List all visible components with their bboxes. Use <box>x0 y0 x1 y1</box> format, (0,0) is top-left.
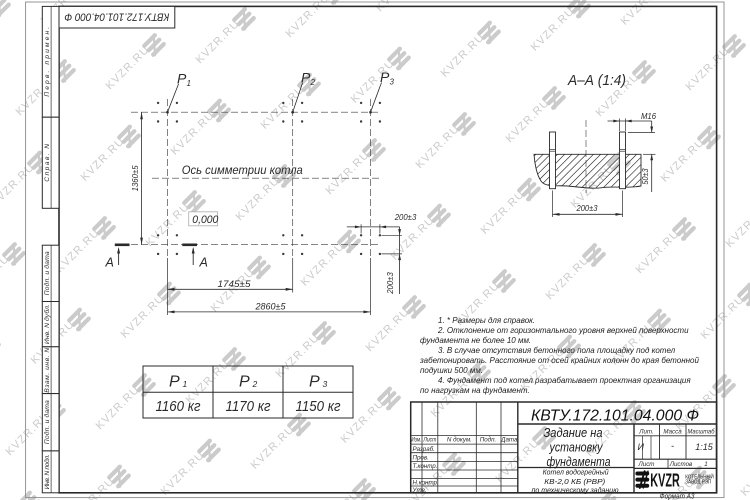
svg-text:3. В случае отсутствия бет: 3. В случае отсутствия бетонного пола пл… <box>438 346 676 355</box>
svg-text:Масштаб: Масштаб <box>688 428 715 435</box>
svg-text:КВ-2,0 КБ (РВР): КВ-2,0 КБ (РВР) <box>544 479 605 486</box>
svg-text:А: А <box>199 256 208 270</box>
svg-text:Подп. и дата: Подп. и дата <box>43 251 51 295</box>
svg-text:А: А <box>105 256 114 270</box>
svg-text:3: 3 <box>390 78 395 87</box>
svg-text:по нагрузкам на фундамент.: по нагрузкам на фундамент. <box>420 386 530 395</box>
svg-text:КВТУ.172.101.04.000 Ф: КВТУ.172.101.04.000 Ф <box>531 407 699 424</box>
svg-text:1160 кг: 1160 кг <box>156 399 201 415</box>
svg-text:2. Отклонение от горизонтал: 2. Отклонение от горизонтального уровня … <box>437 326 689 335</box>
svg-text:Пров.: Пров. <box>413 454 429 461</box>
svg-text:200±3: 200±3 <box>394 213 417 222</box>
svg-text:по техническому заданию: по техническому заданию <box>532 486 620 494</box>
svg-text:P: P <box>380 69 390 85</box>
svg-text:0,000: 0,000 <box>192 214 219 226</box>
svg-text:фундамента: фундамента <box>547 455 611 469</box>
svg-text:А–А (1:4): А–А (1:4) <box>567 73 626 89</box>
svg-text:Лист: Лист <box>638 461 655 468</box>
svg-text:Перв. примен.: Перв. примен. <box>44 27 51 97</box>
svg-text:1: 1 <box>187 79 191 88</box>
svg-text:Задание на: Задание на <box>544 426 603 440</box>
svg-text:ЗАВОД РЭП: ЗАВОД РЭП <box>685 480 711 486</box>
svg-text:Утв.: Утв. <box>412 487 427 494</box>
svg-text:1: 1 <box>704 461 707 468</box>
svg-text:Инв. N дубл.: Инв. N дубл. <box>43 304 51 344</box>
svg-text:P: P <box>309 374 320 391</box>
svg-text:KVZR: KVZR <box>650 469 680 490</box>
svg-text:P: P <box>301 70 311 86</box>
svg-text:1. * Размеры для справок.: 1. * Размеры для справок. <box>438 316 535 325</box>
svg-text:2: 2 <box>252 379 258 389</box>
svg-text:200±3: 200±3 <box>576 204 598 213</box>
svg-text:1: 1 <box>183 379 188 389</box>
svg-text:Ось симметрии котла: Ось симметрии котла <box>182 165 303 177</box>
svg-text:200±3: 200±3 <box>386 272 395 295</box>
svg-text:Котел водогрейный: Котел водогрейный <box>543 469 609 477</box>
svg-text:1:15: 1:15 <box>695 442 714 452</box>
svg-text:P: P <box>177 71 187 87</box>
svg-text:P: P <box>239 374 250 391</box>
svg-text:2: 2 <box>310 78 316 87</box>
svg-text:фундамента не более 10 мм.: фундамента не более 10 мм. <box>420 336 531 345</box>
svg-text:N докум.: N докум. <box>447 437 472 444</box>
svg-text:Листов: Листов <box>669 461 693 468</box>
svg-text:P: P <box>169 374 180 391</box>
svg-text:4. Фундамент под котел раз: 4. Фундамент под котел разрабатывает про… <box>438 376 691 385</box>
svg-text:М16: М16 <box>641 111 656 121</box>
svg-text:Формат А3: Формат А3 <box>660 493 695 500</box>
svg-text:подушки 500 мм.: подушки 500 мм. <box>420 366 483 375</box>
svg-text:1170 кг: 1170 кг <box>226 399 271 415</box>
svg-text:Разраб.: Разраб. <box>413 446 435 453</box>
svg-text:Лит.: Лит. <box>638 428 654 435</box>
svg-text:Дата: Дата <box>500 437 518 444</box>
svg-text:Изм.: Изм. <box>411 437 421 444</box>
svg-text:Н.контр.: Н.контр. <box>413 480 439 487</box>
svg-text:И: И <box>638 442 645 452</box>
svg-text:1150 кг: 1150 кг <box>296 399 341 415</box>
svg-text:Т.контр.: Т.контр. <box>413 463 438 470</box>
svg-text:Инв. N подл.: Инв. N подл. <box>43 454 51 489</box>
svg-text:Подп.: Подп. <box>480 437 496 444</box>
svg-text:2860±5: 2860±5 <box>254 302 286 312</box>
svg-text:КВТУ.172.101.04.000 Ф: КВТУ.172.101.04.000 Ф <box>64 11 169 23</box>
svg-text:забетонировать. Расстояние о: забетонировать. Расстояние от осей крайн… <box>419 356 699 365</box>
svg-text:Взам. инв. N: Взам. инв. N <box>44 348 51 393</box>
svg-text:3: 3 <box>323 379 328 389</box>
svg-text:-: - <box>671 441 674 451</box>
svg-text:50±3: 50±3 <box>641 168 650 184</box>
svg-text:Лист: Лист <box>423 437 437 444</box>
svg-text:1360±5: 1360±5 <box>131 165 140 192</box>
svg-text:установку: установку <box>549 441 603 455</box>
svg-text:Масса: Масса <box>663 428 682 435</box>
svg-text:Подп. и дата: Подп. и дата <box>43 400 51 444</box>
svg-text:1745±5: 1745±5 <box>218 279 252 289</box>
svg-text:Справ. N: Справ. N <box>44 144 51 182</box>
